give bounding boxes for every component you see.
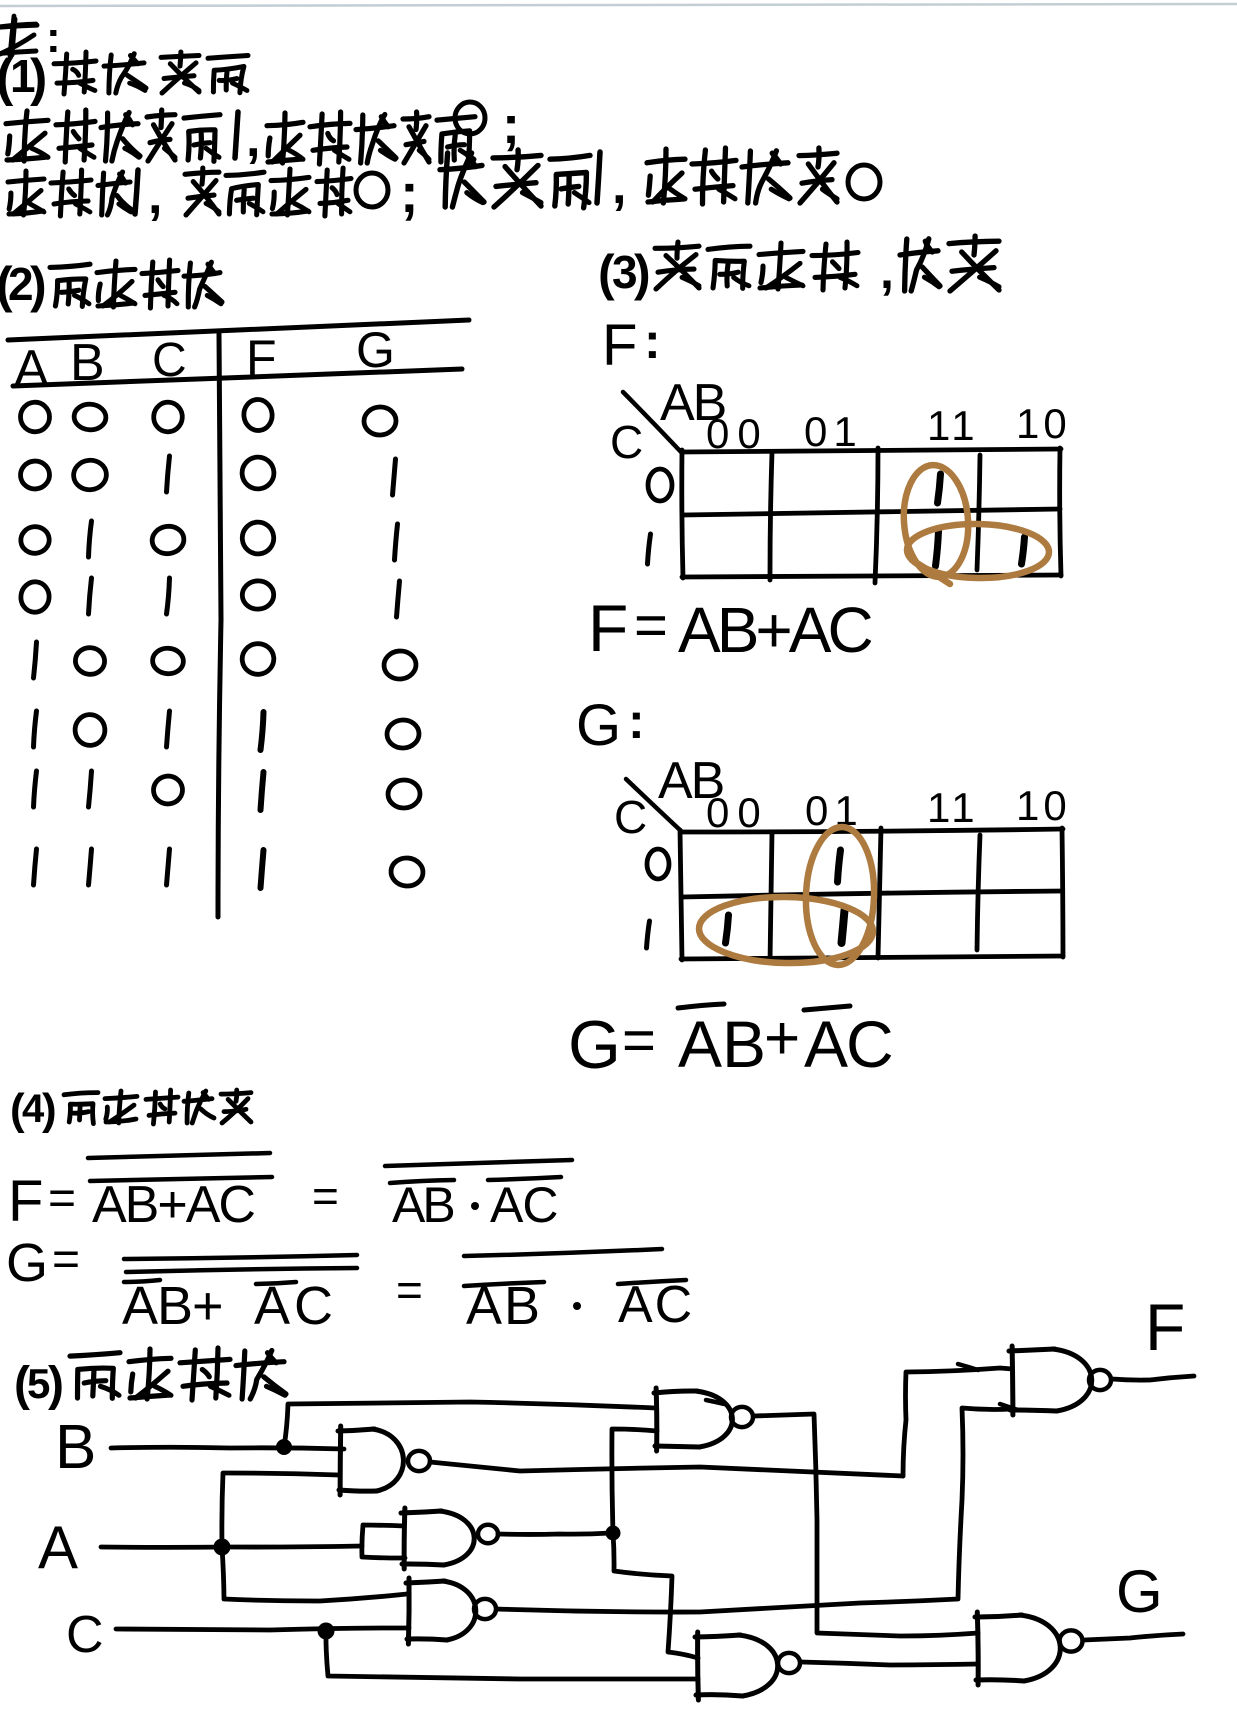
svg-text:F: F bbox=[8, 1169, 43, 1234]
svg-text:A: A bbox=[678, 1007, 722, 1081]
svg-text:AB+AC: AB+AC bbox=[678, 594, 871, 666]
svg-text:5: 5 bbox=[27, 1360, 50, 1407]
svg-text:11: 11 bbox=[927, 402, 979, 449]
svg-text:F: F bbox=[602, 313, 637, 378]
svg-text::: : bbox=[46, 13, 61, 62]
svg-text:;: ; bbox=[502, 95, 520, 155]
svg-text:G: G bbox=[1116, 1558, 1163, 1625]
svg-text:=: = bbox=[48, 1172, 76, 1225]
svg-text:F: F bbox=[588, 591, 628, 665]
svg-text:A: A bbox=[14, 340, 49, 398]
svg-text:=: = bbox=[622, 1008, 656, 1073]
svg-text:AB: AB bbox=[466, 1276, 542, 1336]
svg-text::: : bbox=[628, 693, 645, 749]
svg-text::: : bbox=[644, 313, 661, 369]
svg-text:): ) bbox=[30, 49, 47, 107]
svg-text:11: 11 bbox=[927, 784, 979, 831]
svg-text:): ) bbox=[30, 257, 47, 313]
svg-text:=: = bbox=[52, 1233, 80, 1286]
svg-text:): ) bbox=[42, 1085, 57, 1134]
svg-text:G: G bbox=[576, 693, 621, 758]
svg-text:;: ; bbox=[400, 161, 419, 224]
svg-text:F: F bbox=[1145, 1290, 1185, 1364]
svg-text:B: B bbox=[55, 1413, 96, 1482]
svg-text:=: = bbox=[634, 593, 668, 658]
svg-text:C: C bbox=[66, 1606, 104, 1664]
svg-text:A: A bbox=[38, 1514, 78, 1581]
svg-text:AB: AB bbox=[392, 1177, 453, 1233]
svg-text:C: C bbox=[610, 416, 643, 468]
svg-text:G: G bbox=[6, 1233, 48, 1293]
svg-text:,: , bbox=[880, 243, 894, 299]
svg-text:,: , bbox=[612, 157, 626, 215]
svg-text:10: 10 bbox=[1016, 782, 1071, 829]
svg-text:AB+: AB+ bbox=[122, 1276, 223, 1336]
svg-text:B: B bbox=[722, 1007, 766, 1081]
svg-text:): ) bbox=[634, 245, 651, 301]
svg-text:AC: AC bbox=[254, 1276, 337, 1336]
svg-text:AB+AC: AB+AC bbox=[92, 1176, 254, 1234]
svg-text:10: 10 bbox=[1016, 400, 1071, 447]
svg-text:C: C bbox=[614, 791, 647, 843]
svg-text:00: 00 bbox=[706, 789, 769, 836]
svg-text:+: + bbox=[764, 1004, 800, 1073]
svg-text:01: 01 bbox=[804, 408, 863, 455]
svg-text:,: , bbox=[148, 167, 162, 225]
svg-text:A: A bbox=[804, 1007, 848, 1081]
svg-text:G: G bbox=[568, 1007, 621, 1083]
svg-text:=: = bbox=[396, 1264, 423, 1316]
svg-text:): ) bbox=[48, 1358, 64, 1411]
svg-text:AC: AC bbox=[618, 1276, 694, 1334]
svg-text:C: C bbox=[846, 1007, 894, 1081]
svg-text:AC: AC bbox=[490, 1177, 557, 1233]
svg-text:,: , bbox=[246, 110, 260, 168]
svg-text:=: = bbox=[312, 1170, 339, 1222]
